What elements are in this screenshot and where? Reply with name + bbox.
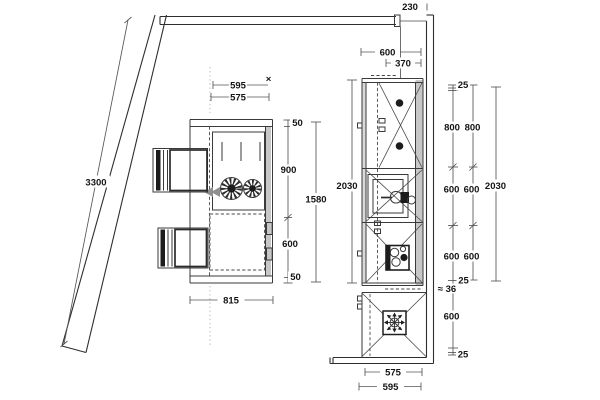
oven-dot-icon bbox=[396, 99, 404, 107]
plan-canvas: 3300 bbox=[0, 0, 600, 400]
dim-label-230: 230 bbox=[402, 2, 418, 13]
drawer-handle-ticks bbox=[222, 142, 260, 161]
dim-label-800-inner: 800 bbox=[465, 123, 481, 134]
dim-label-600-outer-2: 600 bbox=[444, 252, 460, 263]
dim-label-600-lower: 600 bbox=[444, 312, 460, 323]
extractor-fan-icon bbox=[383, 311, 406, 335]
dim-label-600-inner-1: 600 bbox=[464, 185, 480, 196]
dim-label-25-inner-bottom: 25 bbox=[458, 276, 469, 287]
dim-label-900: 900 bbox=[281, 165, 297, 176]
burner-icon bbox=[244, 180, 262, 198]
cabinet-run bbox=[358, 76, 427, 358]
sink-icon bbox=[368, 175, 416, 218]
dim-label-370: 370 bbox=[395, 59, 411, 70]
dim-label-600-inner-2: 600 bbox=[464, 252, 480, 263]
dim-label-2030-left: 2030 bbox=[336, 181, 357, 192]
dim-label-1580: 1580 bbox=[305, 195, 326, 206]
stool bbox=[158, 228, 208, 268]
hob-icon bbox=[386, 246, 409, 271]
kitchen-plan-drawing: 3300 bbox=[0, 0, 600, 400]
dim-label-595-top: 595 bbox=[230, 81, 247, 92]
dim-label-800-outer: 800 bbox=[444, 123, 460, 134]
dim-label-overhang-bottom: 50 bbox=[290, 272, 301, 283]
dim-label-600-island: 600 bbox=[282, 239, 298, 250]
dim-diagonal-wall: 3300 bbox=[61, 17, 132, 347]
dim-label-3300: 3300 bbox=[85, 178, 106, 189]
dim-label-815: 815 bbox=[223, 296, 240, 307]
dim-label-600-top: 600 bbox=[380, 48, 396, 59]
stool bbox=[153, 149, 208, 193]
dim-label-595-bottom: 595 bbox=[383, 382, 400, 393]
dim-label-600-outer-1: 600 bbox=[444, 185, 460, 196]
oven-dot-icon bbox=[396, 142, 404, 150]
dim-label-gap-36: ≈ 36 bbox=[438, 284, 456, 295]
burner-icon bbox=[221, 178, 243, 200]
dim-label-2030-right: 2030 bbox=[485, 181, 506, 192]
dim-label-25-top: 25 bbox=[458, 80, 469, 91]
dim-label-overhang-top: 50 bbox=[292, 118, 303, 129]
dim-label-575-bottom: 575 bbox=[385, 368, 402, 379]
dim-label-575-top: 575 bbox=[230, 93, 247, 104]
bottom-cabinet-section bbox=[358, 293, 427, 358]
island bbox=[153, 67, 273, 345]
dim-label-25-bottom: 25 bbox=[458, 350, 469, 361]
dim-marker-x: × bbox=[266, 74, 272, 85]
